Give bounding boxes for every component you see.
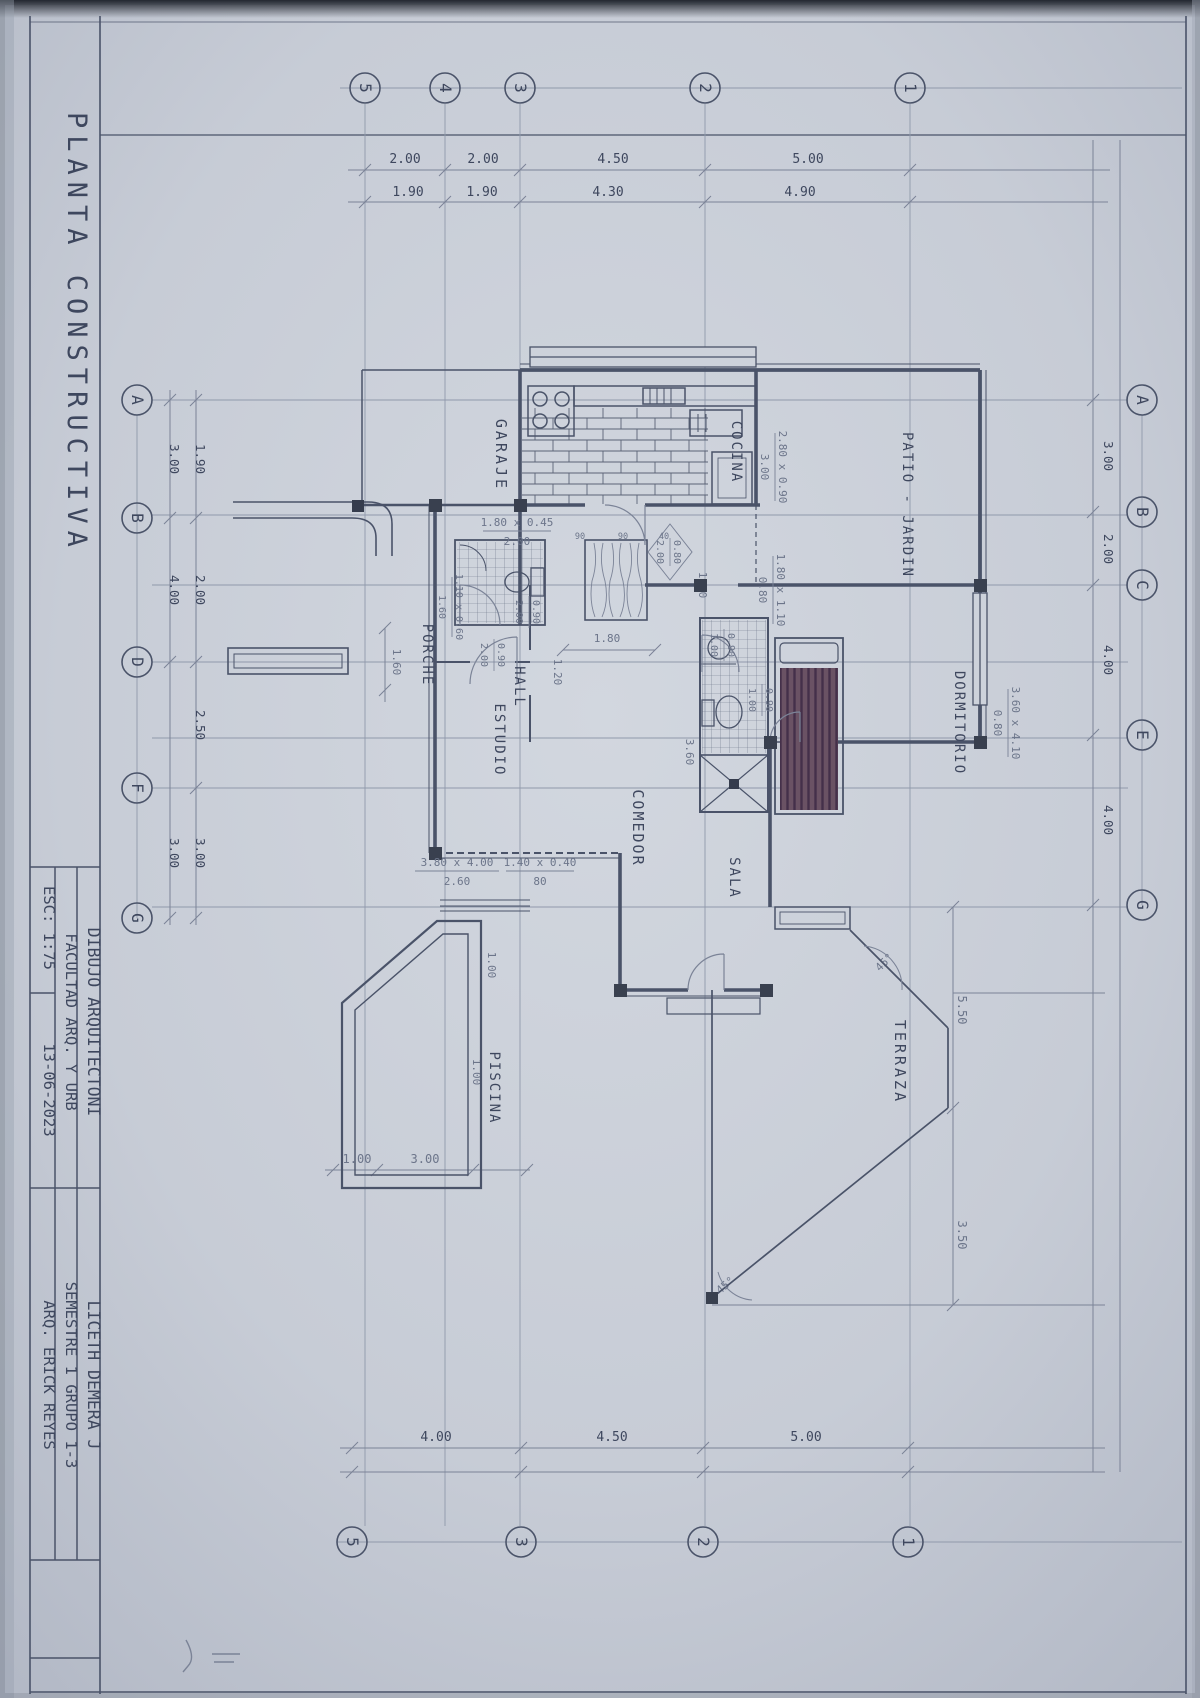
construction-plan-sheet: PLANTA CONSTRUCTIVA DIBUJO ARQUITECTONI …: [0, 0, 1200, 1698]
kitchen-tile-floor: [522, 408, 708, 504]
svg-text:0.90: 0.90: [530, 600, 541, 624]
axis-bubble-right-e: E: [1133, 730, 1152, 740]
svg-text:2.00: 2.00: [513, 600, 524, 624]
svg-text:3.00: 3.00: [758, 454, 771, 481]
svg-text:2.00: 2.00: [478, 643, 489, 667]
room-label-cocina: COCINA: [728, 421, 744, 484]
axis-bubble-right-a: A: [1133, 395, 1152, 405]
axis-bubble-right-g: G: [1133, 900, 1152, 910]
dim-left-inner-3: 2.50: [193, 710, 208, 740]
axis-bubble-top-5: 5: [356, 83, 375, 93]
faculty-label: FACULTAD ARQ. Y URB: [62, 933, 80, 1110]
svg-text:1.10 x 0.60: 1.10 x 0.60: [453, 574, 464, 640]
dim-pool-1: 1.00: [343, 1152, 372, 1166]
svg-text:3.80 x 4.00: 3.80 x 4.00: [421, 856, 494, 869]
svg-text:3.60 x 4.10: 3.60 x 4.10: [1009, 687, 1022, 760]
dim-left-outer-2: 4.00: [167, 575, 182, 605]
room-label-terraza: TERRAZA: [891, 1020, 909, 1104]
professor-name: ARQ. ERICK REYES: [40, 1300, 58, 1449]
dim-top1-4: 5.00: [792, 152, 823, 167]
svg-text:0.80: 0.80: [671, 540, 682, 564]
room-label-sala: SALA: [726, 857, 742, 899]
axis-bubble-bottom-3: 3: [512, 1537, 531, 1547]
axis-bubble-top-2: 2: [696, 83, 715, 93]
dim-interior-120: 1.20: [551, 659, 564, 686]
dim-top2-1: 1.90: [392, 185, 423, 200]
room-label-hall: HALL: [511, 666, 527, 708]
room-label-dormitorio: DORMITORIO: [951, 671, 967, 775]
svg-text:1.00: 1.00: [708, 633, 719, 657]
room-label-porche: PORCHE: [419, 624, 435, 687]
svg-text:2.00: 2.00: [504, 535, 531, 548]
semester-group: SEMESTRE 1 GRUPO 1-3: [62, 1282, 80, 1469]
dim-left-inner-2: 2.00: [193, 575, 208, 605]
axis-bubble-left-g: G: [128, 913, 147, 923]
dim-terraza-2: 3.50: [955, 1221, 969, 1250]
room-label-patio-jardin: PATIO - JARDIN: [899, 432, 915, 578]
dim-right-4: 4.00: [1101, 805, 1116, 835]
porch-column: [352, 500, 364, 512]
dim-left-outer-1: 3.00: [167, 444, 182, 474]
dim-right-1: 3.00: [1101, 441, 1116, 471]
svg-text:1.60: 1.60: [436, 595, 447, 619]
sheet-title: PLANTA CONSTRUCTIVA: [61, 112, 92, 554]
dim-porche-160: 1.60: [390, 649, 403, 676]
student-name: LICETH DEMERA J: [84, 1300, 103, 1449]
dim-pool-2: 3.00: [411, 1152, 440, 1166]
axis-bubble-top-1: 1: [901, 83, 920, 93]
axis-bubble-bottom-5: 5: [343, 1537, 362, 1547]
svg-text:0.80: 0.80: [756, 577, 769, 604]
dim-left-inner-4: 3.00: [193, 838, 208, 868]
axis-bubble-bottom-2: 2: [694, 1537, 713, 1547]
axis-bubble-left-a: A: [128, 395, 147, 405]
project-label: DIBUJO ARQUITECTONI: [84, 928, 103, 1117]
axis-bubble-right-c: C: [1133, 580, 1152, 590]
dim-top2-2: 1.90: [466, 185, 497, 200]
dim-left-inner-1: 1.90: [193, 444, 208, 474]
bed-blanket: [780, 668, 838, 810]
dim-right-2: 2.00: [1101, 534, 1116, 564]
axis-bubble-bottom-1: 1: [899, 1537, 918, 1547]
svg-text:1.00: 1.00: [746, 688, 757, 712]
svg-text:80: 80: [533, 875, 546, 888]
dim-terraza-1: 5.50: [955, 996, 969, 1025]
dim-right-3: 4.00: [1101, 645, 1116, 675]
svg-text:0.90: 0.90: [763, 688, 774, 712]
scale-label: ESC: 1:75: [40, 886, 58, 970]
svg-text:2.60: 2.60: [444, 875, 471, 888]
axis-bubble-top-4: 4: [436, 83, 455, 93]
svg-text:2.80 x 0.90: 2.80 x 0.90: [776, 431, 789, 504]
dim-interior-180: 1.80: [594, 632, 621, 645]
dim-interior-360: 3.60: [683, 739, 696, 766]
svg-text:2.00: 2.00: [654, 540, 665, 564]
svg-text:1.80 x 0.45: 1.80 x 0.45: [481, 516, 554, 529]
room-label-comedor: COMEDOR: [629, 789, 647, 866]
svg-text:0.90: 0.90: [725, 633, 736, 657]
dim-bottom-2: 4.50: [596, 1430, 627, 1445]
axis-bubble-left-f: F: [128, 783, 147, 793]
dim-top2-4: 4.90: [784, 185, 815, 200]
svg-text:1.80 x 1.10: 1.80 x 1.10: [774, 554, 787, 627]
counter-mark-3: 40: [659, 532, 669, 542]
date-label: 13-06-2023: [40, 1043, 58, 1136]
room-label-garaje: GARAJE: [492, 419, 510, 491]
dim-left-outer-3: 3.00: [167, 838, 182, 868]
axis-bubble-left-b: B: [128, 513, 147, 523]
dim-bottom-3: 5.00: [790, 1430, 821, 1445]
counter-mark-2: 90: [618, 532, 628, 542]
axis-bubble-left-d: D: [128, 657, 147, 667]
room-label-estudio: ESTUDIO: [491, 703, 507, 776]
counter-mark-1: 90: [575, 532, 585, 542]
dim-top1-3: 4.50: [597, 152, 628, 167]
shower-drain: [729, 779, 739, 789]
dim-bottom-1: 4.00: [420, 1430, 451, 1445]
dim-top1-2: 2.00: [467, 152, 498, 167]
axis-bubble-right-b: B: [1133, 507, 1152, 517]
svg-text:1.40 x 0.40: 1.40 x 0.40: [504, 856, 577, 869]
svg-text:0.90: 0.90: [495, 643, 506, 667]
svg-text:0.80: 0.80: [991, 710, 1004, 737]
floor-plan-photo: PLANTA CONSTRUCTIVA DIBUJO ARQUITECTONI …: [0, 0, 1200, 1698]
axis-bubble-top-3: 3: [511, 83, 530, 93]
room-label-piscina: PISCINA: [486, 1051, 502, 1124]
dim-top1-1: 2.00: [389, 152, 420, 167]
dim-top2-3: 4.30: [592, 185, 623, 200]
dim-pool-side-1: 1.00: [485, 952, 498, 979]
